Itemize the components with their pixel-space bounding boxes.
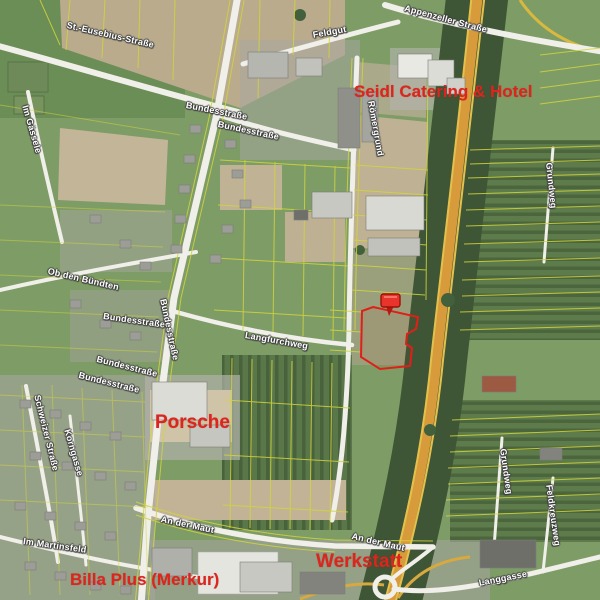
poi-label-billa-plus-merkur: Billa Plus (Merkur) <box>70 570 219 590</box>
poi-label-seidl-catering-hotel: Seidl Catering & Hotel <box>354 82 533 102</box>
map-canvas[interactable]: St.-Eusebius-Straße Feldgut Appenzeller … <box>0 0 600 600</box>
poi-label-werkstatt: Werkstatt <box>316 551 402 573</box>
poi-label-porsche: Porsche <box>155 412 230 434</box>
